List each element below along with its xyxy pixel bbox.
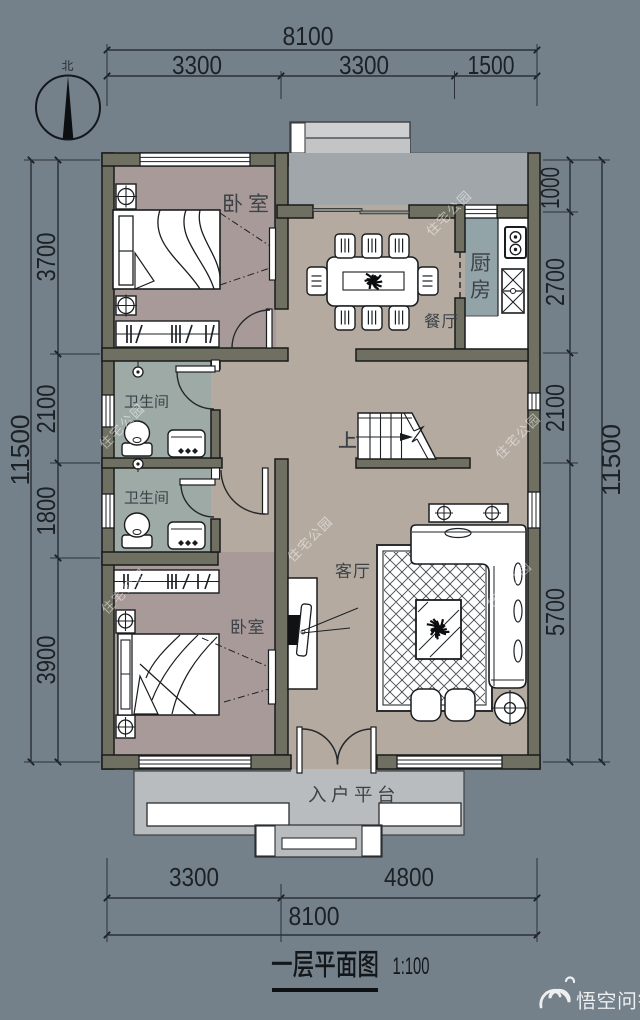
svg-text:11500: 11500 (596, 424, 626, 496)
svg-text:1500: 1500 (468, 50, 515, 80)
svg-text:2100: 2100 (540, 384, 570, 432)
svg-text:1000: 1000 (535, 167, 565, 209)
svg-text:8100: 8100 (283, 21, 334, 51)
svg-text:3700: 3700 (31, 233, 61, 282)
svg-text:3300: 3300 (169, 862, 219, 892)
svg-text:2700: 2700 (540, 258, 570, 306)
svg-text:3900: 3900 (31, 636, 61, 685)
svg-text:1800: 1800 (31, 487, 61, 536)
svg-text:1:100: 1:100 (393, 953, 430, 980)
svg-text:4800: 4800 (384, 862, 434, 892)
svg-text:3300: 3300 (172, 50, 222, 80)
svg-text:8100: 8100 (289, 901, 340, 931)
svg-text:5700: 5700 (540, 588, 570, 636)
svg-text:3300: 3300 (339, 50, 389, 80)
svg-text:2100: 2100 (31, 385, 61, 434)
